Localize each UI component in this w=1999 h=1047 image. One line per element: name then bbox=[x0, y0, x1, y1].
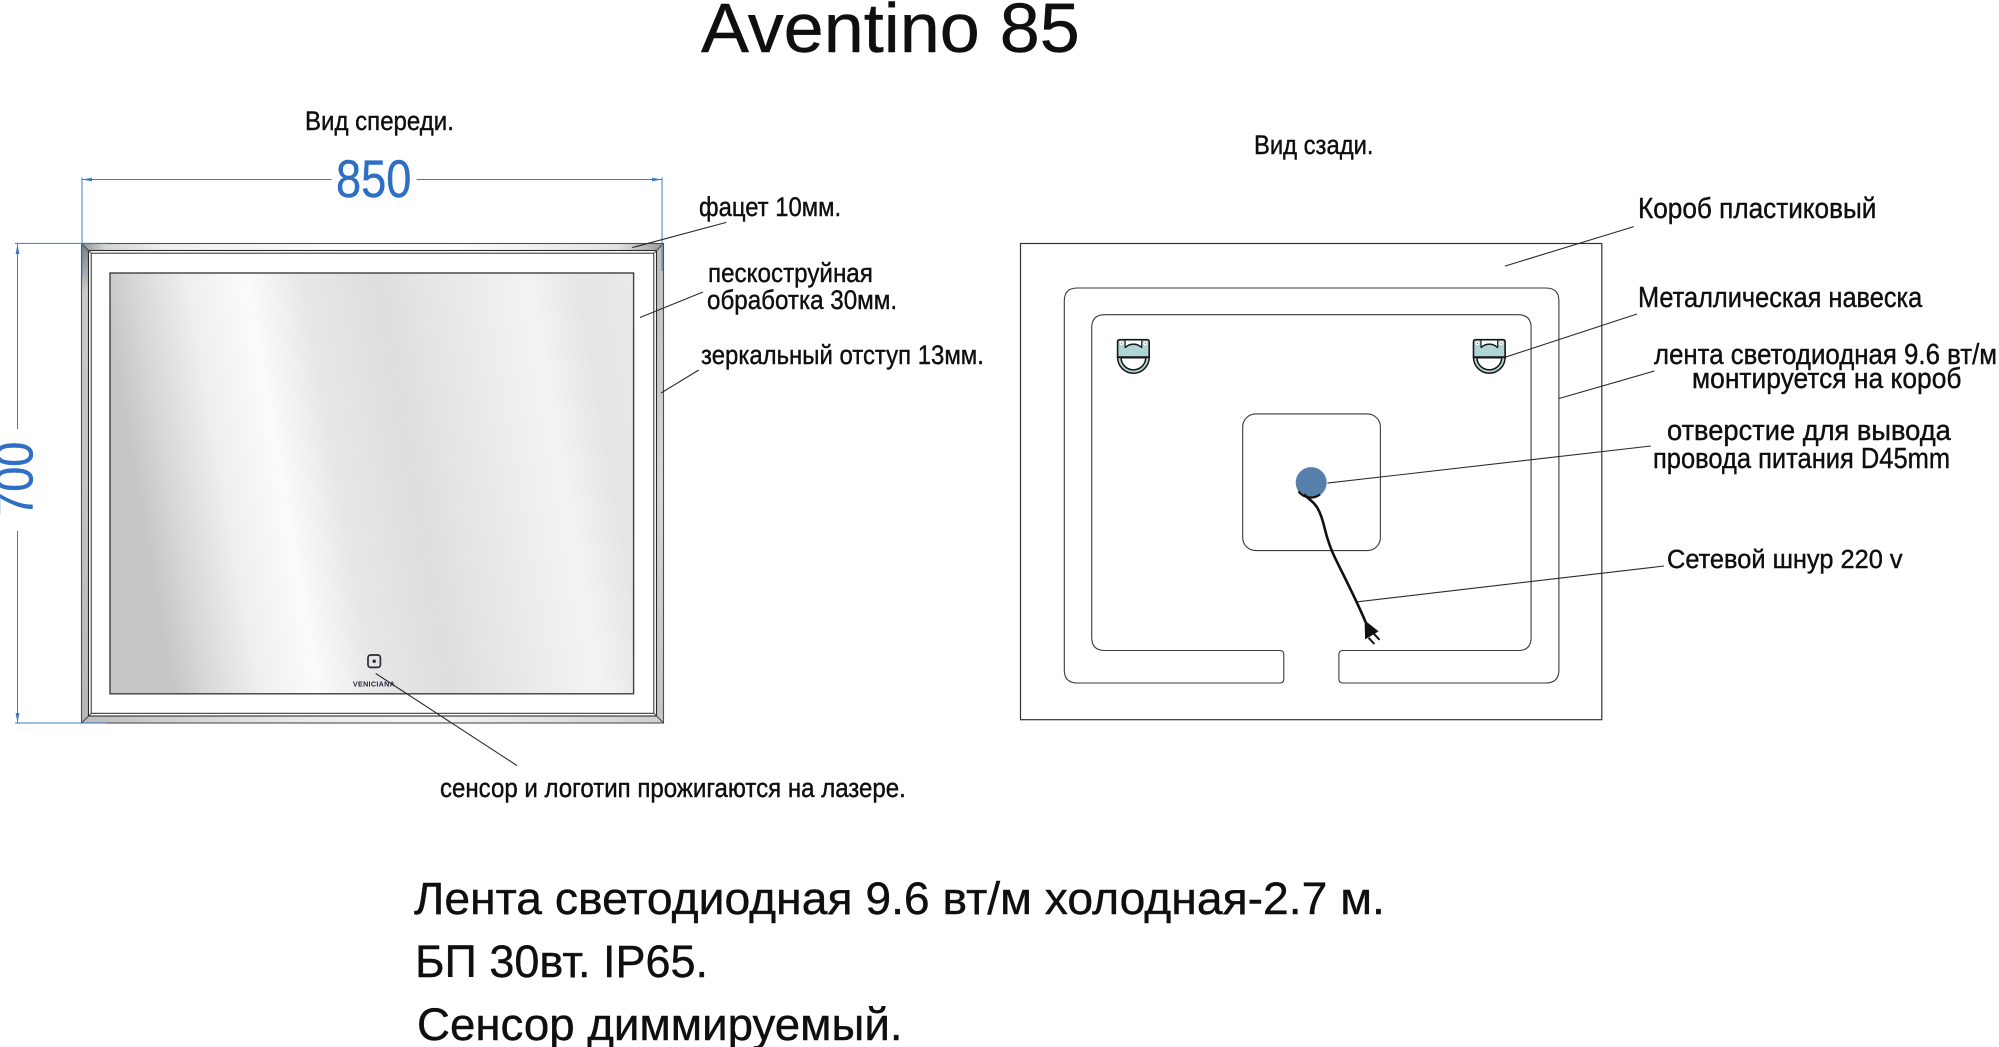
svg-text:VENICIANA: VENICIANA bbox=[353, 680, 395, 689]
